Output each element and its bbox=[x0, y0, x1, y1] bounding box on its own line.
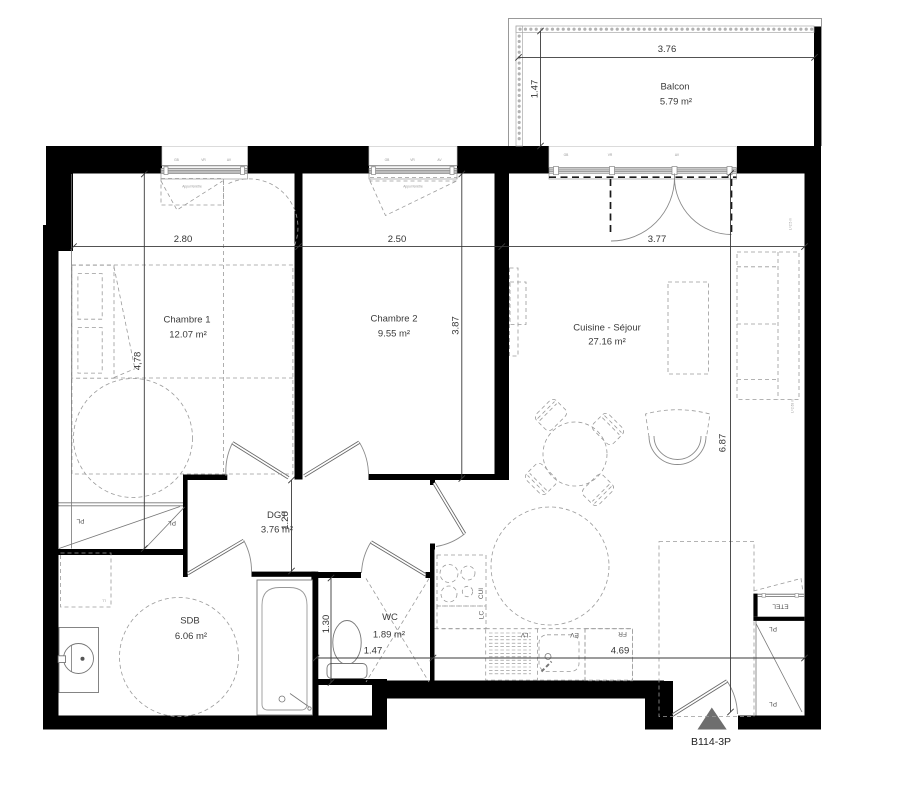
svg-text:4.69: 4.69 bbox=[611, 646, 630, 657]
svg-text:LC: LC bbox=[478, 611, 485, 620]
svg-text:VR: VR bbox=[410, 158, 415, 162]
svg-text:PL: PL bbox=[769, 625, 777, 632]
svg-text:27.16 m²: 27.16 m² bbox=[588, 337, 626, 348]
svg-text:Chambre 1: Chambre 1 bbox=[164, 315, 211, 326]
svg-text:1.89 m²: 1.89 m² bbox=[373, 630, 405, 641]
svg-text:1.20: 1.20 bbox=[280, 511, 291, 530]
svg-text:3.87: 3.87 bbox=[451, 316, 462, 335]
svg-text:4,78: 4,78 bbox=[133, 352, 144, 371]
svg-text:VR: VR bbox=[608, 153, 613, 157]
svg-text:Appui fenêtre: Appui fenêtre bbox=[182, 185, 202, 189]
svg-text:GB: GB bbox=[564, 153, 570, 157]
svg-text:3.77: 3.77 bbox=[648, 234, 667, 245]
svg-text:B114-3P: B114-3P bbox=[691, 736, 731, 748]
svg-text:Chambre 2: Chambre 2 bbox=[371, 314, 418, 325]
svg-text:EV: EV bbox=[570, 631, 579, 638]
svg-text:PL: PL bbox=[769, 700, 777, 707]
svg-text:WC: WC bbox=[382, 612, 398, 623]
svg-text:1.47: 1.47 bbox=[530, 80, 541, 99]
svg-text:CUI: CUI bbox=[478, 588, 485, 599]
svg-text:ETEL: ETEL bbox=[772, 603, 789, 610]
svg-text:1.30: 1.30 bbox=[321, 615, 332, 634]
svg-text:Appui fenêtre: Appui fenêtre bbox=[403, 185, 423, 189]
svg-text:6.06 m²: 6.06 m² bbox=[175, 631, 207, 642]
svg-text:Cuisine - Séjour: Cuisine - Séjour bbox=[573, 323, 641, 334]
svg-text:PL: PL bbox=[168, 519, 176, 526]
svg-text:2.80: 2.80 bbox=[174, 234, 193, 245]
svg-text:L=2.5 m: L=2.5 m bbox=[789, 218, 793, 230]
svg-text:SDB: SDB bbox=[180, 616, 200, 627]
svg-text:LL: LL bbox=[102, 599, 106, 603]
svg-text:3.76: 3.76 bbox=[658, 44, 677, 55]
svg-text:VR: VR bbox=[201, 158, 206, 162]
svg-text:9.55 m²: 9.55 m² bbox=[378, 329, 410, 340]
svg-text:1.47: 1.47 bbox=[364, 646, 383, 657]
svg-text:L=2.63 m: L=2.63 m bbox=[791, 399, 795, 413]
svg-text:5.79 m²: 5.79 m² bbox=[660, 97, 692, 108]
svg-text:PL: PL bbox=[76, 517, 84, 524]
svg-text:6.87: 6.87 bbox=[718, 434, 729, 453]
svg-text:Balcon: Balcon bbox=[660, 82, 689, 93]
svg-text:FR: FR bbox=[618, 630, 627, 637]
svg-text:GB: GB bbox=[385, 158, 391, 162]
svg-text:12.07 m²: 12.07 m² bbox=[169, 330, 207, 341]
svg-text:LV: LV bbox=[520, 631, 528, 638]
svg-text:GB: GB bbox=[174, 158, 180, 162]
svg-text:2.50: 2.50 bbox=[388, 234, 407, 245]
